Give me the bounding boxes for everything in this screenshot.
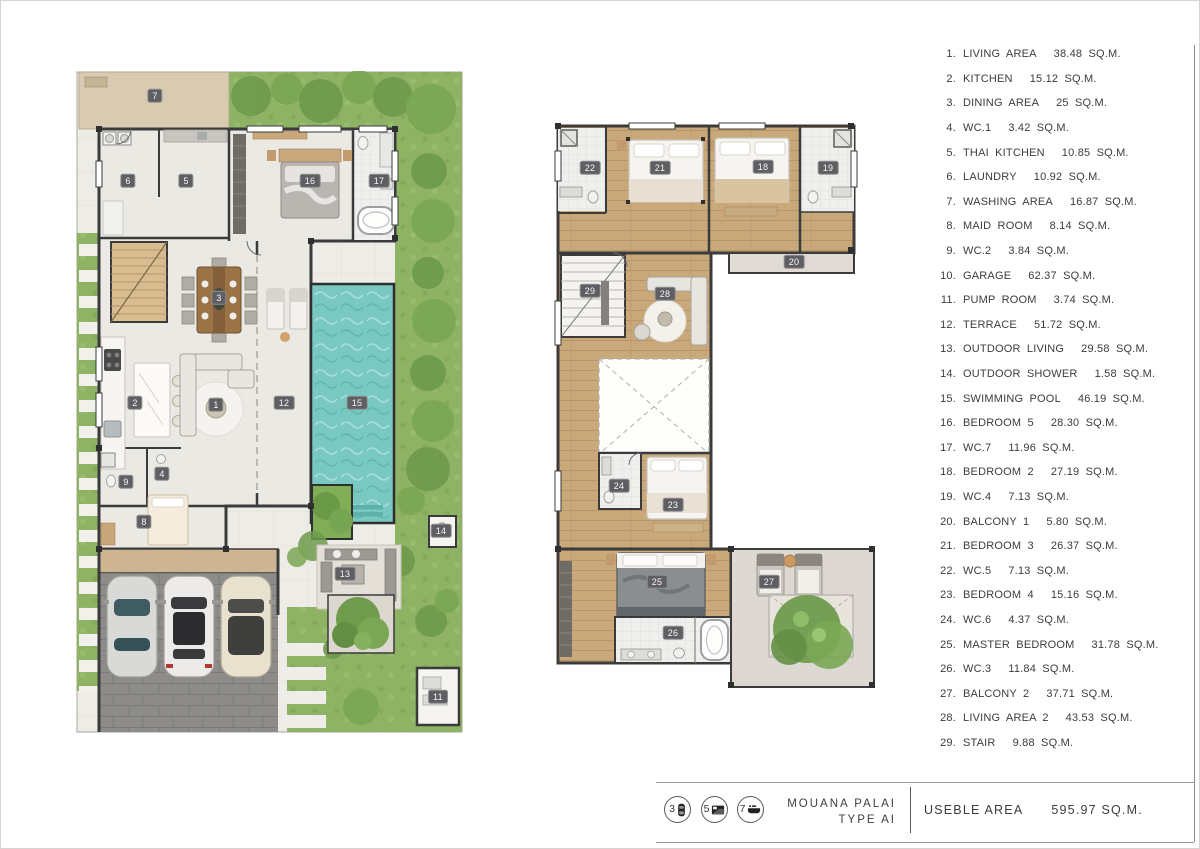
legend-text: WC.1 bbox=[963, 122, 991, 134]
legend-text: 19. bbox=[934, 491, 956, 503]
legend-item: 12.TERRACE51.72 SQ.M. bbox=[934, 313, 1196, 338]
legend-text: 9.88 SQ.M. bbox=[1013, 737, 1074, 749]
legend-item: 6.LAUNDRY10.92 SQ.M. bbox=[934, 165, 1196, 190]
legend-text: 17. bbox=[934, 442, 956, 454]
legend-text: 10. bbox=[934, 270, 956, 282]
legend-item: 27.BALCONY 237.71 SQ.M. bbox=[934, 681, 1196, 706]
legend-item: 15.SWIMMING POOL46.19 SQ.M. bbox=[934, 386, 1196, 411]
void-opening bbox=[599, 359, 709, 454]
legend-text: 38.48 SQ.M. bbox=[1054, 48, 1121, 60]
architectural-sheet: 7651617321121594814131122211819202928242… bbox=[0, 0, 1200, 849]
legend-text: 7.13 SQ.M. bbox=[1008, 491, 1069, 503]
sheet-frame-line bbox=[1194, 45, 1195, 842]
legend-item: 11.PUMP ROOM3.74 SQ.M. bbox=[934, 288, 1196, 313]
legend-text: 3.84 SQ.M. bbox=[1008, 245, 1069, 257]
legend-text: 25 SQ.M. bbox=[1056, 97, 1107, 109]
legend-text: 31.78 SQ.M. bbox=[1092, 639, 1159, 651]
legend-text: 43.53 SQ.M. bbox=[1066, 712, 1133, 724]
legend-text: 28.30 SQ.M. bbox=[1051, 417, 1118, 429]
legend-item: 7.WASHING AREA16.87 SQ.M. bbox=[934, 190, 1196, 215]
legend-text: 37.71 SQ.M. bbox=[1046, 688, 1113, 700]
legend-text: DINING AREA bbox=[963, 97, 1039, 109]
legend-item: 17.WC.711.96 SQ.M. bbox=[934, 436, 1196, 461]
legend-text: PUMP ROOM bbox=[963, 294, 1037, 306]
legend-text: 29.58 SQ.M. bbox=[1081, 343, 1148, 355]
useble-area-label: USEBLE AREA bbox=[924, 803, 1023, 817]
legend-item: 13.OUTDOOR LIVING29.58 SQ.M. bbox=[934, 337, 1196, 362]
washing-area bbox=[79, 72, 229, 129]
legend-item: 2.KITCHEN15.12 SQ.M. bbox=[934, 67, 1196, 92]
legend-text: 11.84 SQ.M. bbox=[1008, 663, 1074, 675]
legend-text: 27. bbox=[934, 688, 956, 700]
legend-item: 19.WC.47.13 SQ.M. bbox=[934, 485, 1196, 510]
legend-text: OUTDOOR LIVING bbox=[963, 343, 1064, 355]
legend-text: 12. bbox=[934, 319, 956, 331]
legend-text: 24. bbox=[934, 614, 956, 626]
legend-text: 8.14 SQ.M. bbox=[1050, 220, 1111, 232]
car-1 bbox=[103, 576, 161, 677]
legend-text: TERRACE bbox=[963, 319, 1017, 331]
legend-text: 2. bbox=[934, 73, 956, 85]
pump-room bbox=[417, 668, 459, 725]
legend-text: KITCHEN bbox=[963, 73, 1013, 85]
legend-text: 4.37 SQ.M. bbox=[1008, 614, 1069, 626]
legend-text: 3.42 SQ.M. bbox=[1008, 122, 1069, 134]
legend-text: 7. bbox=[934, 196, 956, 208]
legend-text: 16. bbox=[934, 417, 956, 429]
legend-item: 22.WC.57.13 SQ.M. bbox=[934, 558, 1196, 583]
useble-area-value: 595.97 SQ.M. bbox=[1051, 803, 1143, 817]
outdoor-shower bbox=[429, 516, 456, 547]
useble-area: USEBLE AREA 595.97 SQ.M. bbox=[924, 803, 1143, 817]
legend-text: 9. bbox=[934, 245, 956, 257]
legend-text: 18. bbox=[934, 466, 956, 478]
project-name: MOUANA PALAI TYPE AI bbox=[787, 797, 896, 828]
legend-text: WC.4 bbox=[963, 491, 991, 503]
stat-bedrooms: 5 bbox=[701, 796, 728, 823]
legend-item: 25.MASTER BEDROOM31.78 SQ.M. bbox=[934, 632, 1196, 657]
legend-text: WC.5 bbox=[963, 565, 991, 577]
legend-text: BEDROOM 5 bbox=[963, 417, 1034, 429]
legend-text: 7.13 SQ.M. bbox=[1008, 565, 1069, 577]
car-count: 3 bbox=[669, 804, 675, 815]
legend-text: 46.19 SQ.M. bbox=[1078, 393, 1145, 405]
wc3 bbox=[615, 617, 731, 663]
legend-item: 3.DINING AREA25 SQ.M. bbox=[934, 91, 1196, 116]
legend-text: LIVING AREA 2 bbox=[963, 712, 1049, 724]
legend-text: OUTDOOR SHOWER bbox=[963, 368, 1078, 380]
legend-item: 5.THAI KITCHEN10.85 SQ.M. bbox=[934, 140, 1196, 165]
legend-text: 1. bbox=[934, 48, 956, 60]
legend-text: 26. bbox=[934, 663, 956, 675]
legend-text: WASHING AREA bbox=[963, 196, 1053, 208]
legend-text: 22. bbox=[934, 565, 956, 577]
legend-text: 3.74 SQ.M. bbox=[1054, 294, 1115, 306]
staircase bbox=[111, 242, 167, 322]
second-floor-plan bbox=[546, 116, 881, 691]
legend-item: 8.MAID ROOM8.14 SQ.M. bbox=[934, 214, 1196, 239]
car-icon bbox=[677, 803, 686, 817]
legend-text: BALCONY 1 bbox=[963, 516, 1029, 528]
wc5 bbox=[558, 126, 606, 213]
legend-text: 8. bbox=[934, 220, 956, 232]
legend-text: 20. bbox=[934, 516, 956, 528]
legend-text: 15.12 SQ.M. bbox=[1030, 73, 1097, 85]
legend-item: 18.BEDROOM 227.19 SQ.M. bbox=[934, 460, 1196, 485]
legend-text: 23. bbox=[934, 589, 956, 601]
legend-text: WC.6 bbox=[963, 614, 991, 626]
legend-text: 62.37 SQ.M. bbox=[1028, 270, 1095, 282]
legend-text: 51.72 SQ.M. bbox=[1034, 319, 1101, 331]
bedroom-count: 5 bbox=[704, 804, 710, 815]
legend-text: 15.16 SQ.M. bbox=[1051, 589, 1118, 601]
legend-text: WC.3 bbox=[963, 663, 991, 675]
ground-floor-plan bbox=[76, 71, 463, 733]
legend-text: SWIMMING POOL bbox=[963, 393, 1061, 405]
legend-text: 5. bbox=[934, 147, 956, 159]
legend-text: STAIR bbox=[963, 737, 996, 749]
legend-text: 14. bbox=[934, 368, 956, 380]
title-block-bottom-rule bbox=[656, 842, 1194, 843]
legend-text: 3. bbox=[934, 97, 956, 109]
legend-text: BALCONY 2 bbox=[963, 688, 1029, 700]
legend-item: 24.WC.64.37 SQ.M. bbox=[934, 608, 1196, 633]
legend-text: MASTER BEDROOM bbox=[963, 639, 1075, 651]
stat-bathrooms: 7 bbox=[737, 796, 764, 823]
legend-item: 4.WC.13.42 SQ.M. bbox=[934, 116, 1196, 141]
legend-text: 25. bbox=[934, 639, 956, 651]
legend-text: 11.96 SQ.M. bbox=[1008, 442, 1074, 454]
area-legend: 1.LIVING AREA38.48 SQ.M.2.KITCHEN15.12 S… bbox=[934, 42, 1196, 755]
legend-text: MAID ROOM bbox=[963, 220, 1033, 232]
bath-icon bbox=[747, 804, 761, 815]
legend-text: 11. bbox=[934, 294, 956, 306]
legend-text: BEDROOM 4 bbox=[963, 589, 1034, 601]
legend-item: 1.LIVING AREA38.48 SQ.M. bbox=[934, 42, 1196, 67]
legend-text: 10.85 SQ.M. bbox=[1062, 147, 1129, 159]
legend-text: 15. bbox=[934, 393, 956, 405]
legend-item: 21.BEDROOM 326.37 SQ.M. bbox=[934, 534, 1196, 559]
car-3 bbox=[217, 576, 275, 677]
legend-item: 14.OUTDOOR SHOWER1.58 SQ.M. bbox=[934, 362, 1196, 387]
legend-item: 20.BALCONY 15.80 SQ.M. bbox=[934, 509, 1196, 534]
legend-text: 29. bbox=[934, 737, 956, 749]
legend-text: LAUNDRY bbox=[963, 171, 1017, 183]
legend-text: LIVING AREA bbox=[963, 48, 1037, 60]
legend-text: 4. bbox=[934, 122, 956, 134]
legend-text: 21. bbox=[934, 540, 956, 552]
legend-text: 28. bbox=[934, 712, 956, 724]
stair-upper bbox=[561, 255, 625, 337]
legend-text: 27.19 SQ.M. bbox=[1051, 466, 1118, 478]
legend-item: 28.LIVING AREA 243.53 SQ.M. bbox=[934, 706, 1196, 731]
legend-text: 10.92 SQ.M. bbox=[1034, 171, 1101, 183]
legend-item: 10.GARAGE62.37 SQ.M. bbox=[934, 263, 1196, 288]
legend-text: 13. bbox=[934, 343, 956, 355]
legend-item: 16.BEDROOM 528.30 SQ.M. bbox=[934, 411, 1196, 436]
legend-item: 9.WC.23.84 SQ.M. bbox=[934, 239, 1196, 264]
bathroom-count: 7 bbox=[740, 804, 746, 815]
legend-text: GARAGE bbox=[963, 270, 1011, 282]
title-block-top-rule bbox=[656, 782, 1194, 783]
legend-text: WC.2 bbox=[963, 245, 991, 257]
legend-text: 5.80 SQ.M. bbox=[1046, 516, 1107, 528]
title-block-divider bbox=[910, 787, 911, 833]
legend-text: 6. bbox=[934, 171, 956, 183]
legend-item: 23.BEDROOM 415.16 SQ.M. bbox=[934, 583, 1196, 608]
legend-text: BEDROOM 3 bbox=[963, 540, 1034, 552]
legend-text: THAI KITCHEN bbox=[963, 147, 1045, 159]
legend-text: 16.87 SQ.M. bbox=[1070, 196, 1137, 208]
legend-text: BEDROOM 2 bbox=[963, 466, 1034, 478]
legend-text: 26.37 SQ.M. bbox=[1051, 540, 1118, 552]
car-2 bbox=[160, 576, 218, 677]
bed-icon bbox=[711, 804, 725, 816]
legend-text: WC.7 bbox=[963, 442, 991, 454]
legend-item: 26.WC.311.84 SQ.M. bbox=[934, 657, 1196, 682]
legend-text: 1.58 SQ.M. bbox=[1095, 368, 1156, 380]
project-type-line: TYPE AI bbox=[787, 813, 896, 829]
legend-item: 29.STAIR9.88 SQ.M. bbox=[934, 731, 1196, 756]
project-name-line1: MOUANA PALAI bbox=[787, 797, 896, 813]
outdoor-living bbox=[317, 545, 401, 653]
stat-cars: 3 bbox=[664, 796, 691, 823]
